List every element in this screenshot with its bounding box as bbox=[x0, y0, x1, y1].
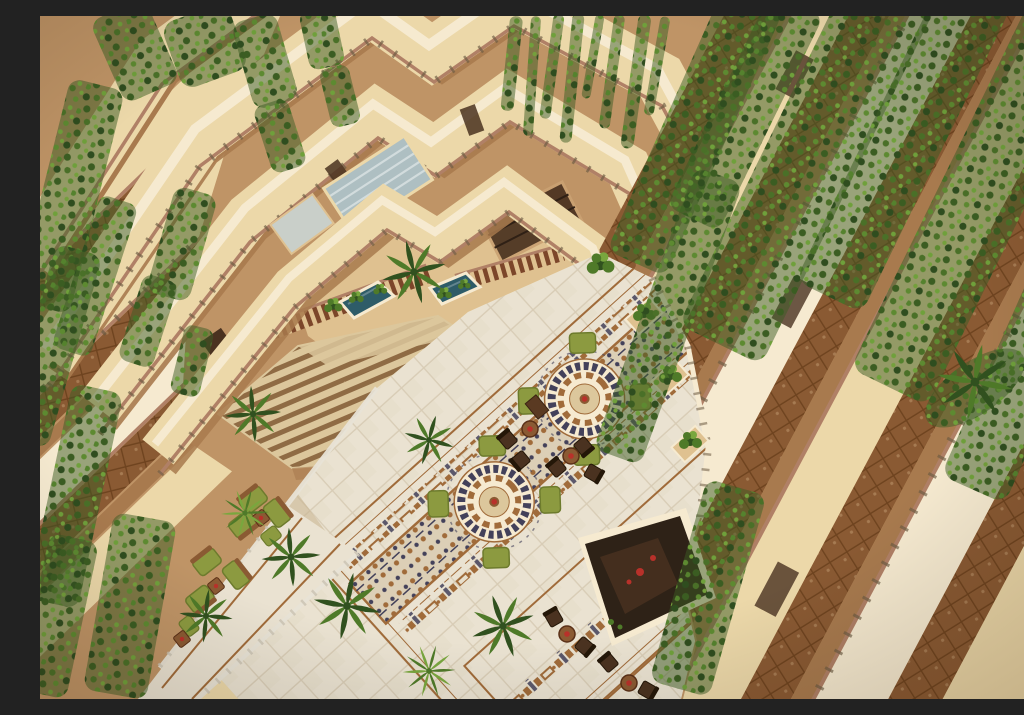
atrium-photo bbox=[40, 16, 1024, 699]
vignette-overlay bbox=[40, 16, 1024, 699]
atrium-scene bbox=[40, 16, 1024, 699]
